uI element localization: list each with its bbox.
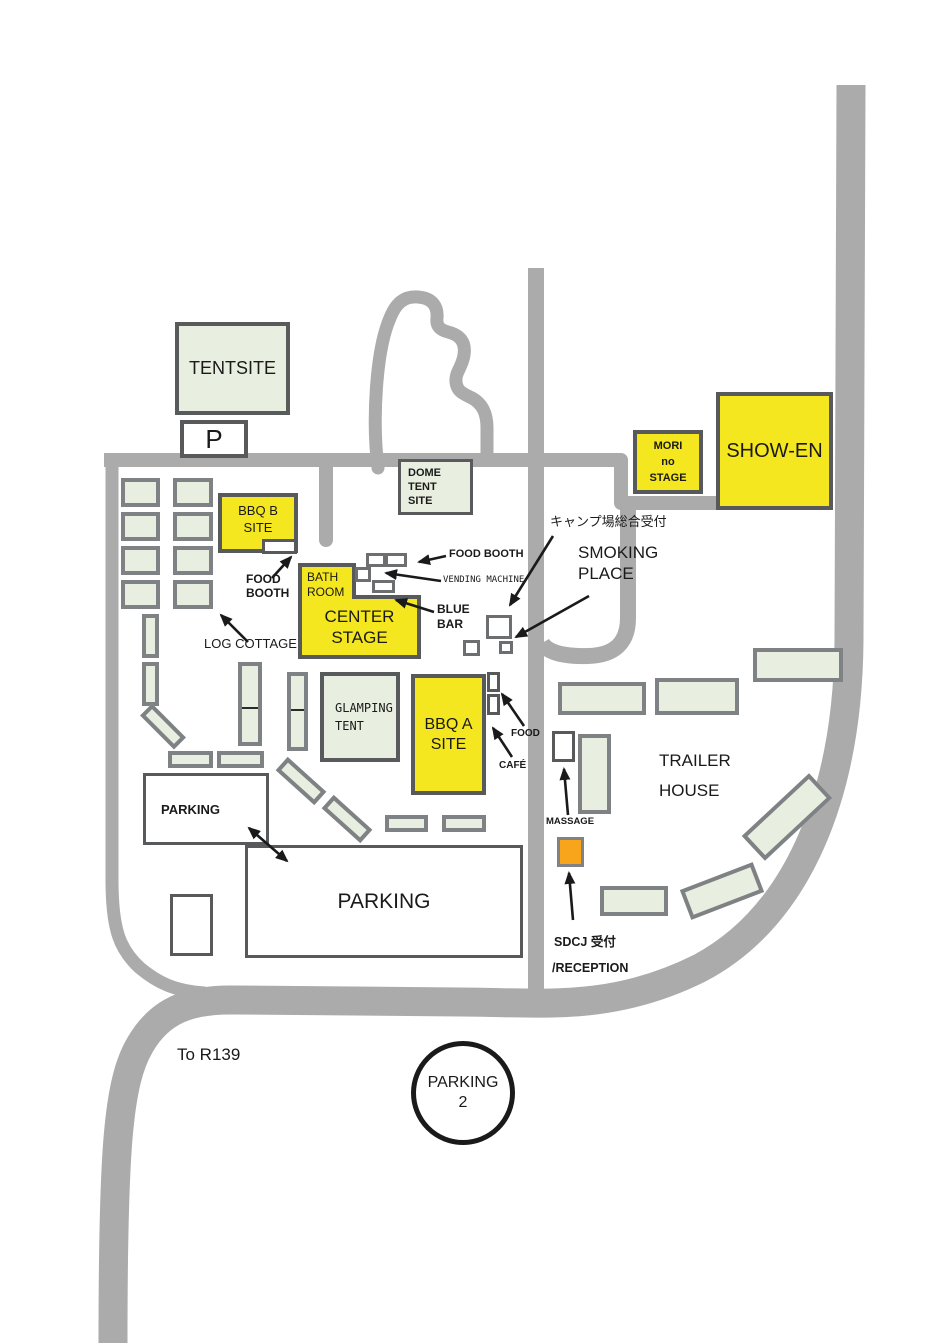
sdcj-reception-label: SDCJ 受付 [554,931,616,950]
arrow-vending-machine [386,573,441,581]
site-map: TENTSITE P DOME TENT SITE BBQ B SITE MOR… [0,0,950,1343]
blue-bar-label: BLUE BAR [437,602,470,632]
arrow-parking-link [249,828,287,861]
smoking-place-label: SMOKING PLACE [578,542,658,584]
reception-label: /RECEPTION [552,961,628,975]
camp-reception-label: キャンプ場総合受付 [550,511,667,530]
food-label: FOOD [511,728,540,739]
arrow-smoking-place [516,596,589,637]
arrow-camp-reception [510,536,553,605]
arrow-massage [564,769,568,815]
food-booth-bbqb-label: FOOD BOOTH [246,572,289,600]
to-r139-label: To R139 [177,1045,240,1065]
arrow-cafe [493,728,512,757]
massage-label: MASSAGE [546,816,594,827]
arrow-blue-bar [396,600,434,612]
food-booth-center-label: FOOD BOOTH [449,548,524,560]
vending-machine-label: VENDING MACHINE [443,575,524,585]
arrow-sdcj-reception [569,873,573,920]
arrow-food-booth-center [419,556,446,562]
log-cottage-label: LOG COTTAGE [204,636,297,651]
arrow-food [502,694,524,726]
cafe-label: CAFÉ [499,760,526,771]
arrows-layer [0,0,950,1343]
trailer-house-label: TRAILER HOUSE [659,746,731,806]
